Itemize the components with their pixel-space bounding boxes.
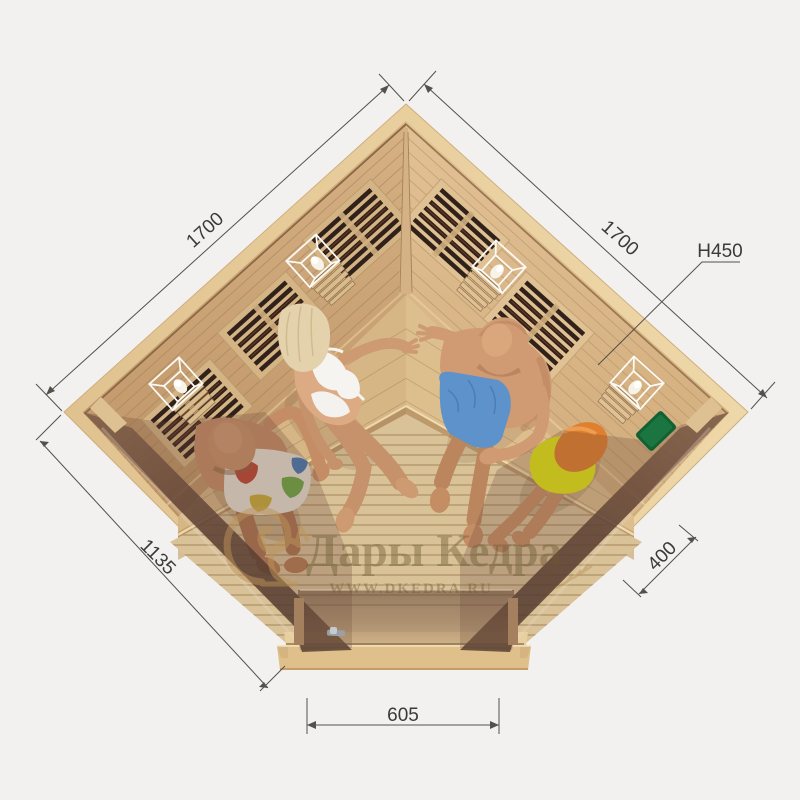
svg-text:605: 605 [387, 705, 419, 726]
svg-text:Дары Кедра: Дары Кедра [306, 525, 562, 577]
svg-text:H450: H450 [697, 241, 742, 262]
svg-text:WWW.DKEDRA.RU: WWW.DKEDRA.RU [329, 581, 493, 597]
